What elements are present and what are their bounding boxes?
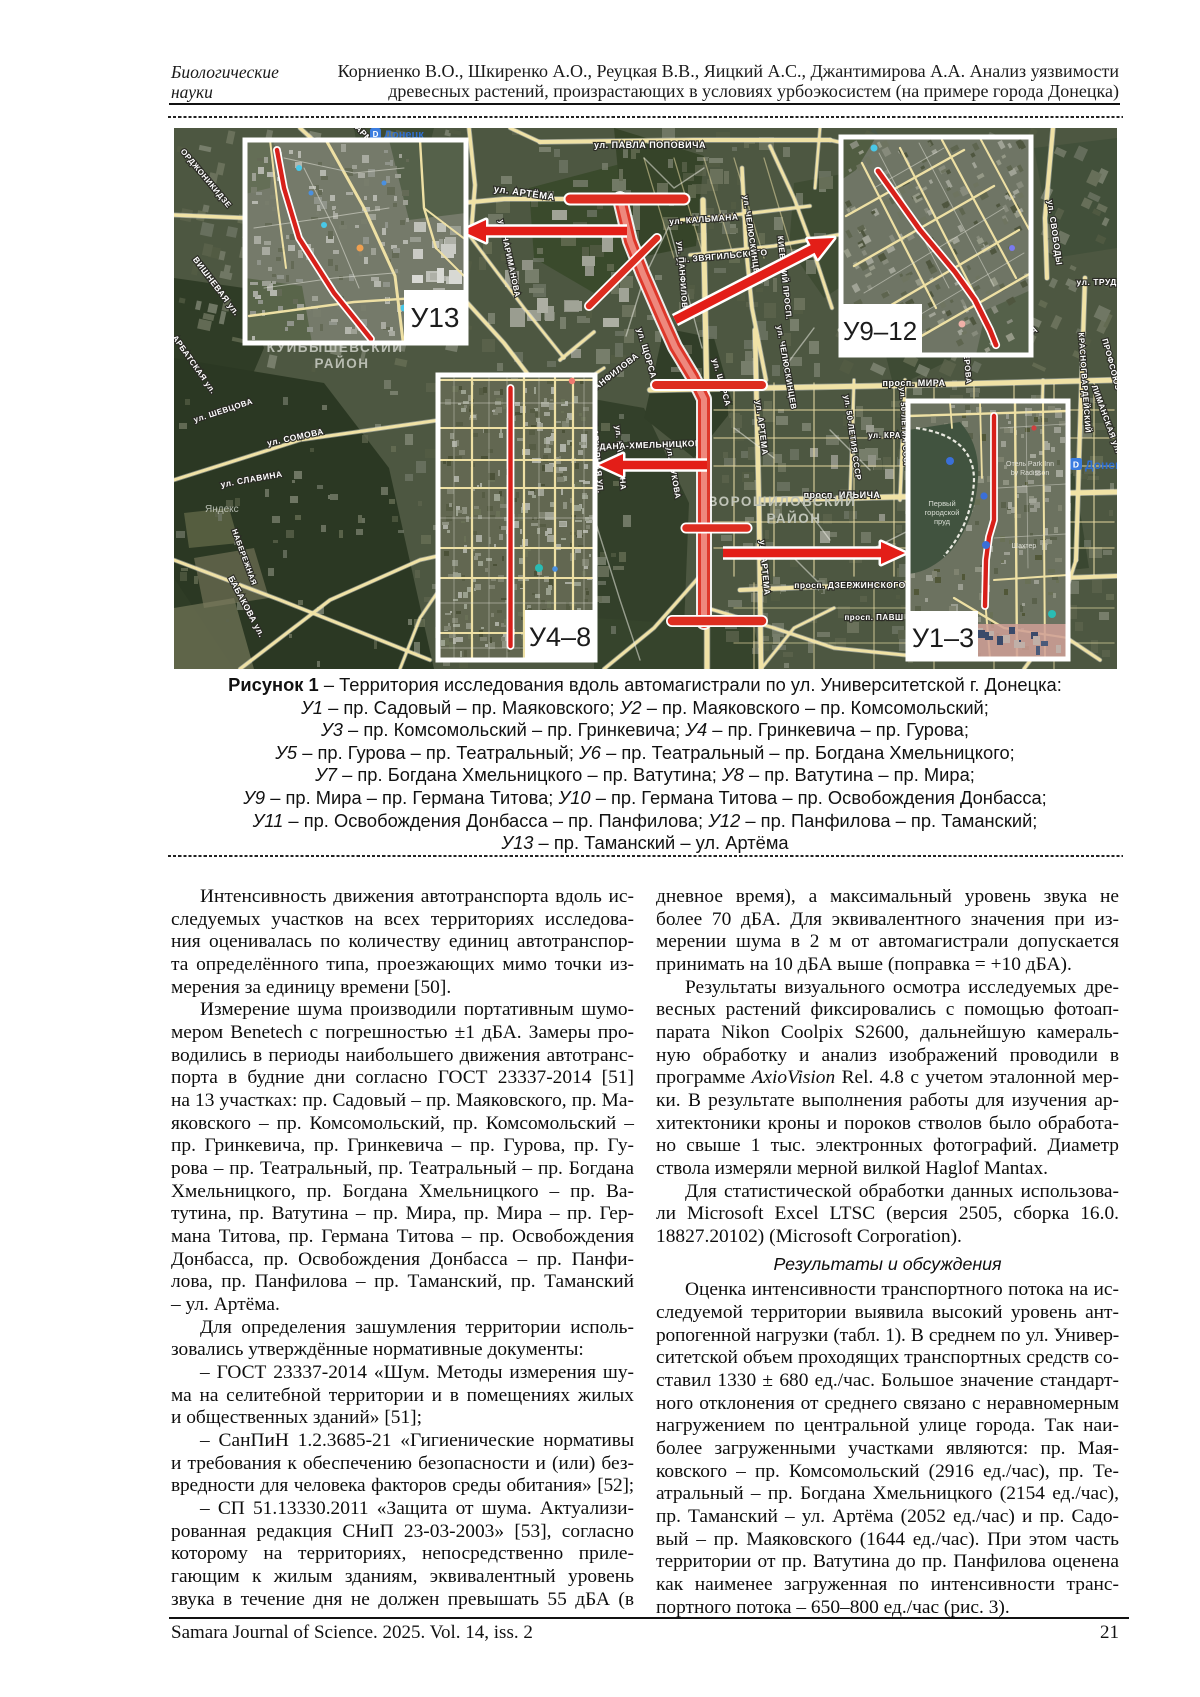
svg-text:городской: городской (925, 508, 960, 517)
svg-text:ул. ПАВЛА ПОПОВИЧА: ул. ПАВЛА ПОПОВИЧА (594, 140, 706, 150)
svg-text:Шахтер: Шахтер (1012, 543, 1037, 550)
svg-text:У9–12: У9–12 (843, 316, 917, 346)
svg-text:Яндекс: Яндекс (205, 504, 239, 515)
svg-text:ВОРОШИЛОВСКИЙ: ВОРОШИЛОВСКИЙ (708, 494, 857, 509)
svg-text:Отель Park Inn: Отель Park Inn (1006, 461, 1054, 468)
svg-text:просп. МИРА: просп. МИРА (883, 378, 946, 388)
svg-text:У4–8: У4–8 (529, 622, 591, 652)
svg-text:просп. ДЗЕРЖИНСКОГО: просп. ДЗЕРЖИНСКОГО (794, 580, 905, 590)
svg-text:РАЙОН: РАЙОН (766, 511, 821, 526)
svg-text:D: D (1073, 460, 1079, 470)
svg-text:У13: У13 (411, 302, 460, 333)
svg-text:by Radisson: by Radisson (1011, 470, 1050, 477)
svg-text:пруд: пруд (934, 517, 951, 526)
svg-text:РАЙОН: РАЙОН (314, 356, 369, 371)
svg-text:Донецк: Донецк (1085, 458, 1117, 472)
svg-text:Первый: Первый (928, 499, 955, 508)
svg-text:просп. ПАВШ: просп. ПАВШ (844, 613, 903, 622)
svg-text:ул. ТРУДА: ул. ТРУДА (1076, 277, 1117, 287)
svg-text:У1–3: У1–3 (912, 623, 974, 653)
